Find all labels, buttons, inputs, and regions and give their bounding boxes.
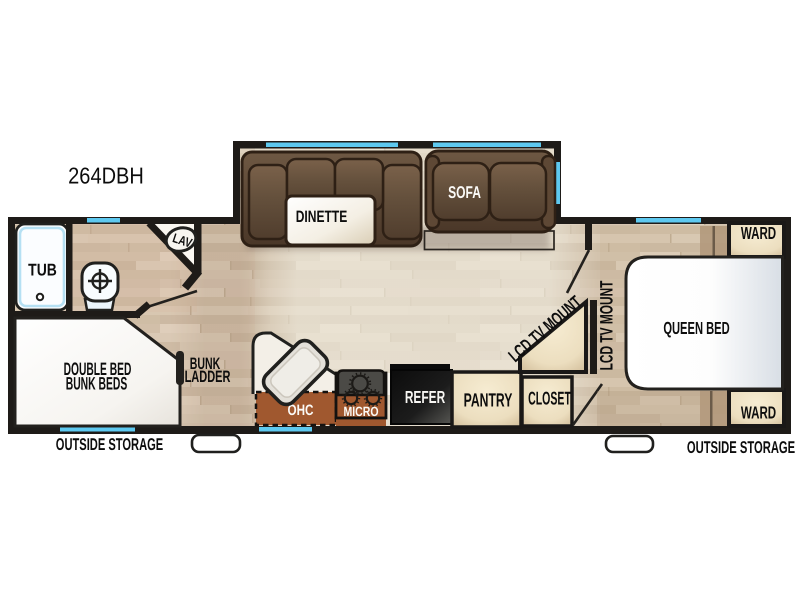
svg-text:DINETTE: DINETTE bbox=[296, 208, 348, 226]
svg-text:TUB: TUB bbox=[28, 261, 57, 280]
svg-text:SOFA: SOFA bbox=[448, 183, 481, 202]
svg-text:OUTSIDE STORAGE: OUTSIDE STORAGE bbox=[56, 435, 163, 454]
svg-text:PANTRY: PANTRY bbox=[464, 390, 513, 411]
svg-text:WARD: WARD bbox=[741, 402, 776, 422]
svg-text:MICRO: MICRO bbox=[343, 404, 378, 419]
svg-text:WARD: WARD bbox=[741, 223, 776, 243]
svg-text:LCD TV MOUNT: LCD TV MOUNT bbox=[596, 281, 616, 371]
svg-text:BUNK BEDS: BUNK BEDS bbox=[66, 373, 128, 393]
svg-text:LADDER: LADDER bbox=[185, 368, 231, 386]
svg-text:CLOSET: CLOSET bbox=[528, 388, 571, 409]
svg-text:264DBH: 264DBH bbox=[68, 163, 144, 189]
svg-text:QUEEN BED: QUEEN BED bbox=[663, 318, 729, 338]
svg-text:OUTSIDE STORAGE: OUTSIDE STORAGE bbox=[687, 438, 795, 457]
svg-text:REFER: REFER bbox=[405, 387, 446, 407]
